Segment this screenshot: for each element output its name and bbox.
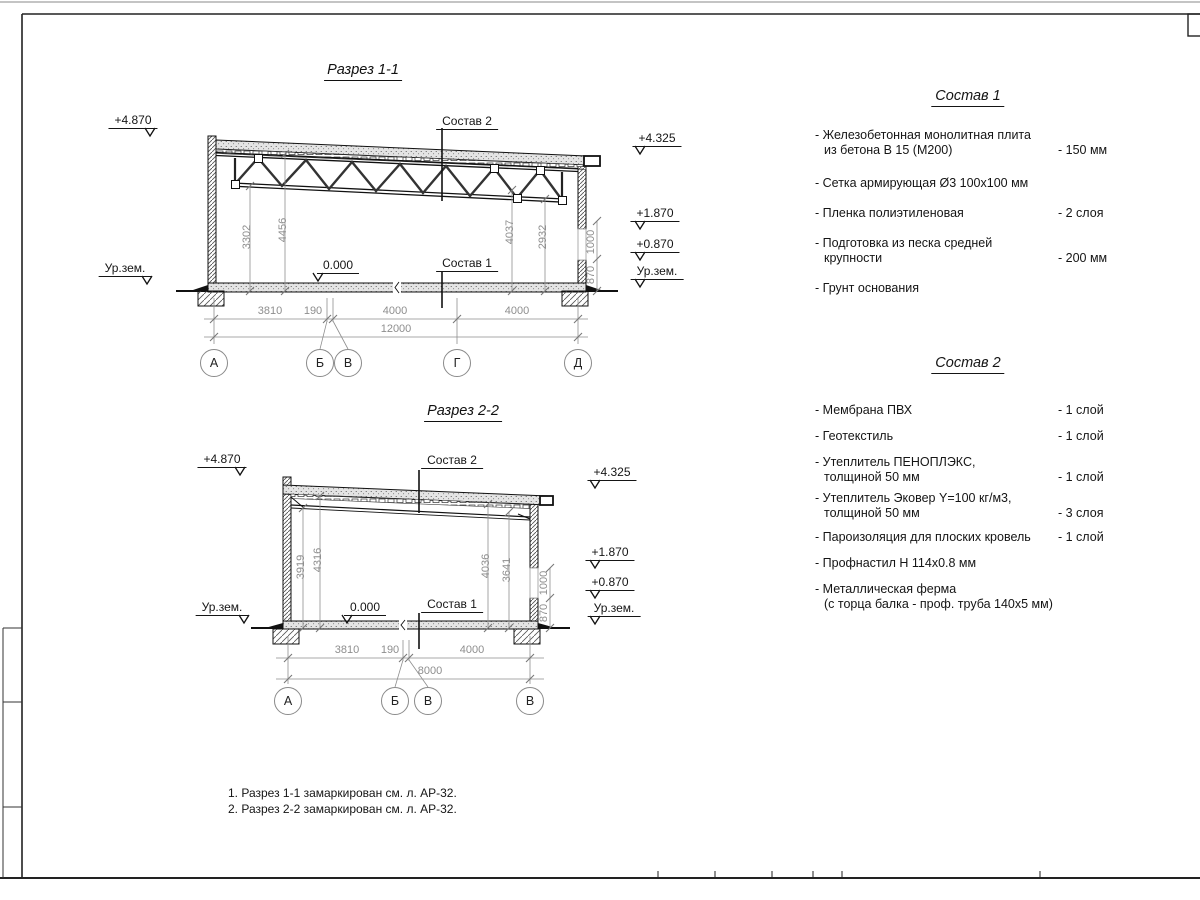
item-value: - 1 слой — [1058, 470, 1104, 485]
section2-dim-ticks — [284, 492, 554, 683]
wall-dim: 1000 — [585, 230, 597, 254]
sostav1-ref-label: Состав 1 — [421, 597, 483, 613]
axis-bubble: А — [200, 349, 228, 377]
item-text: - Железобетонная монолитная плита — [815, 128, 1160, 143]
item-text: - Металлическая ферма — [815, 582, 1160, 597]
item-value: - 2 слоя — [1058, 206, 1103, 221]
height-dim: 4456 — [277, 218, 289, 242]
axis-bubble: Б — [381, 687, 409, 715]
sostav2-ref-label: Состав 2 — [436, 114, 498, 130]
elevation-mark: +4.325 — [632, 131, 681, 147]
ground-level-label: Ур.зем. — [588, 601, 641, 617]
item-value: - 1 слой — [1058, 429, 1104, 444]
elevation-mark: +0.870 — [630, 237, 679, 253]
elevation-mark: +4.870 — [197, 452, 246, 468]
list-item: - Пароизоляция для плоских кровель - 1 с… — [815, 530, 1160, 545]
height-dim: 3919 — [295, 555, 307, 579]
total-dim-label: 8000 — [418, 665, 442, 677]
axis-bubble: В — [334, 349, 362, 377]
item-text: - Профнастил Н 114х0.8 мм — [815, 556, 1160, 571]
list-item: - Металлическая ферма (с торца балка - п… — [815, 582, 1160, 611]
item-text: (с торца балка - проф. труба 140х5 мм) — [815, 597, 1160, 612]
section2-dimensions — [276, 496, 550, 687]
section1-structure — [176, 128, 618, 308]
item-text: - Утеплитель ПЕНОПЛЭКС, — [815, 455, 1160, 470]
item-value: - 1 слой — [1058, 530, 1104, 545]
list-item: - Грунт основания — [815, 281, 1160, 296]
wall-dim: 870 — [585, 266, 597, 284]
wall-dim: 870 — [538, 604, 550, 622]
item-value: - 1 слой — [1058, 403, 1104, 418]
ground-level-label: Ур.зем. — [196, 600, 249, 616]
list-item: - Геотекстиль - 1 слой — [815, 429, 1160, 444]
item-text: крупности — [815, 251, 1160, 266]
ground-level-label: Ур.зем. — [631, 264, 684, 280]
axis-bubble: В — [516, 687, 544, 715]
sheet-notes: 1. Разрез 1-1 замаркирован см. л. АР-32.… — [228, 786, 457, 817]
section1-dimensions — [204, 154, 597, 349]
list-item: - Пленка полиэтиленовая - 2 слоя — [815, 206, 1160, 221]
item-text: - Геотекстиль — [815, 429, 1160, 444]
total-dim-label: 12000 — [381, 323, 412, 335]
section2-title: Разрез 2-2 — [424, 403, 502, 422]
dim-label: 4000 — [460, 644, 484, 656]
list-item: - Утеплитель ПЕНОПЛЭКС, толщиной 50 мм -… — [815, 455, 1160, 484]
dim-label: 4000 — [505, 305, 529, 317]
axis-bubble: В — [414, 687, 442, 715]
list-item: - Подготовка из песка средней крупности … — [815, 236, 1160, 265]
item-text: толщиной 50 мм — [815, 506, 1160, 521]
zero-level-label: 0.000 — [344, 600, 386, 616]
item-text: - Мембрана ПВХ — [815, 403, 1160, 418]
dim-label: 190 — [304, 305, 322, 317]
item-text: из бетона В 15 (М200) — [815, 143, 1160, 158]
dim-label: 4000 — [383, 305, 407, 317]
item-value: - 200 мм — [1058, 251, 1107, 266]
ground-level-label: Ур.зем. — [99, 261, 152, 277]
note-line: 2. Разрез 2-2 замаркирован см. л. АР-32. — [228, 802, 457, 818]
axis-bubble: Д — [564, 349, 592, 377]
axis-bubble: А — [274, 687, 302, 715]
elevation-mark: +4.325 — [587, 465, 636, 481]
sostav1-ref-label: Состав 1 — [436, 256, 498, 272]
list-item: - Мембрана ПВХ - 1 слой — [815, 403, 1160, 418]
dim-label: 190 — [381, 644, 399, 656]
height-dim: 4316 — [312, 548, 324, 572]
wall-dim: 1000 — [538, 571, 550, 595]
item-text: - Подготовка из песка средней — [815, 236, 1160, 251]
height-dim: 4036 — [480, 554, 492, 578]
drawing-sheet: Разрез 1-1 +4.870 Ур.зем. 0.000 Состав 2… — [0, 0, 1200, 900]
item-text: толщиной 50 мм — [815, 470, 1160, 485]
list-item: - Утеплитель Эковер Y=100 кг/м3, толщино… — [815, 491, 1160, 520]
axis-bubble: Б — [306, 349, 334, 377]
elevation-mark: +1.870 — [585, 545, 634, 561]
sostav1-title: Состав 1 — [931, 88, 1004, 107]
item-text: - Грунт основания — [815, 281, 1160, 296]
height-dim: 2932 — [537, 225, 549, 249]
list-item: - Сетка армирующая Ø3 100х100 мм — [815, 176, 1160, 191]
height-dim: 3302 — [241, 225, 253, 249]
dim-label: 3810 — [258, 305, 282, 317]
elevation-mark: +1.870 — [630, 206, 679, 222]
sostav2-ref-label: Состав 2 — [421, 453, 483, 469]
item-value: - 150 мм — [1058, 143, 1107, 158]
section1-title: Разрез 1-1 — [324, 62, 402, 81]
height-dim: 3641 — [501, 558, 513, 582]
elevation-mark: +0.870 — [585, 575, 634, 591]
dim-label: 3810 — [335, 644, 359, 656]
item-value: - 3 слоя — [1058, 506, 1103, 521]
list-item: - Профнастил Н 114х0.8 мм — [815, 556, 1160, 571]
list-item: - Железобетонная монолитная плита из бет… — [815, 128, 1160, 157]
height-dim: 4037 — [504, 220, 516, 244]
item-text: - Пленка полиэтиленовая — [815, 206, 1160, 221]
item-text: - Сетка армирующая Ø3 100х100 мм — [815, 176, 1160, 191]
zero-level-label: 0.000 — [317, 258, 359, 274]
item-text: - Пароизоляция для плоских кровель — [815, 530, 1160, 545]
item-text: - Утеплитель Эковер Y=100 кг/м3, — [815, 491, 1160, 506]
axis-bubble: Г — [443, 349, 471, 377]
sostav2-title: Состав 2 — [931, 355, 1004, 374]
note-line: 1. Разрез 1-1 замаркирован см. л. АР-32. — [228, 786, 457, 802]
elevation-mark: +4.870 — [108, 113, 157, 129]
